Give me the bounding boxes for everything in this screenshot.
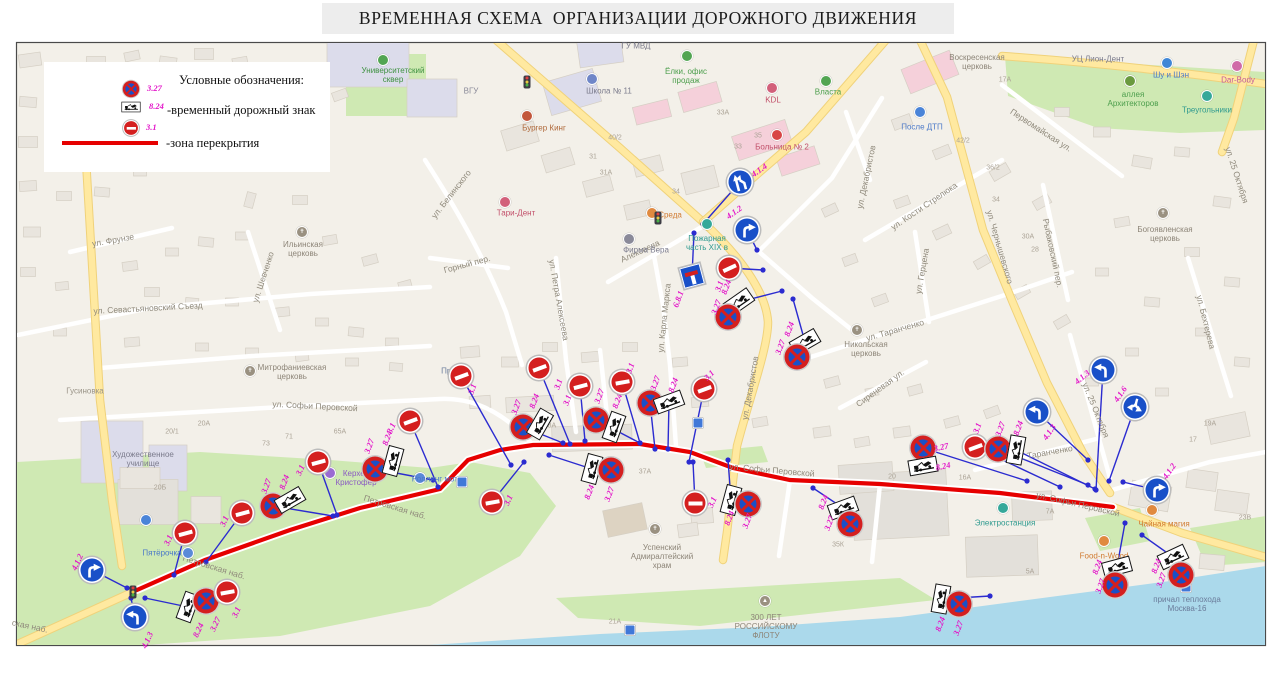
- building: [21, 268, 36, 277]
- building: [198, 237, 214, 248]
- building: [1094, 127, 1111, 137]
- building: [460, 346, 480, 359]
- sign-anchor-dot: [521, 459, 526, 464]
- building: [1186, 469, 1218, 492]
- building: [1224, 277, 1240, 287]
- legend-sign-3.1: [124, 121, 138, 135]
- building: [1144, 297, 1160, 307]
- building: [581, 351, 599, 362]
- building: [24, 227, 41, 237]
- sign-anchor-dot: [1122, 520, 1127, 525]
- traffic-sign-3.27: [125, 83, 136, 94]
- building: [1199, 553, 1225, 570]
- page-title: ВРЕМЕННАЯ СХЕМА ОРГАНИЗАЦИИ ДОРОЖНОГО ДВ…: [322, 3, 954, 34]
- building: [293, 196, 308, 205]
- legend-closure-line-sample: [62, 141, 158, 145]
- legend-heading: Условные обозначения:: [179, 73, 304, 88]
- building: [1174, 147, 1190, 157]
- building: [19, 96, 37, 107]
- building: [19, 137, 38, 148]
- building: [1185, 248, 1200, 257]
- sign-anchor-dot: [435, 484, 440, 489]
- legend-sign-label: 8.24: [149, 101, 164, 111]
- sign-anchor-dot: [1085, 457, 1090, 462]
- sign-anchor-dot: [760, 267, 765, 272]
- sign-anchor-dot: [560, 440, 565, 445]
- building: [120, 468, 160, 489]
- building: [348, 327, 364, 338]
- sign-anchor-dot: [754, 247, 759, 252]
- sign-anchor-dot: [665, 446, 670, 451]
- building: [506, 395, 555, 412]
- building: [1156, 388, 1169, 396]
- sign-anchor-dot: [142, 595, 147, 600]
- building: [1196, 328, 1209, 336]
- building: [196, 343, 209, 351]
- sign-anchor-dot: [1024, 478, 1029, 483]
- legend-sign-8.24: [121, 102, 140, 113]
- sign-anchor-dot: [690, 459, 695, 464]
- sign-anchor-dot: [124, 585, 129, 590]
- sign-anchor-dot: [546, 452, 551, 457]
- building: [502, 357, 519, 367]
- sign-anchor-dot: [1057, 484, 1062, 489]
- building: [677, 522, 699, 538]
- sign-leader-line: [668, 402, 669, 449]
- legend-temp-sign-text: -временный дорожный знак: [167, 103, 316, 118]
- building: [838, 462, 894, 495]
- building: [55, 281, 69, 290]
- scheme-page: ВРЕМЕННАЯ СХЕМА ОРГАНИЗАЦИИ ДОРОЖНОГО ДВ…: [0, 0, 1280, 678]
- building: [576, 32, 624, 68]
- building: [543, 343, 558, 352]
- sign-anchor-dot: [203, 559, 208, 564]
- building: [407, 79, 457, 117]
- building: [191, 497, 221, 524]
- sign-anchor-dot: [987, 593, 992, 598]
- building: [1215, 489, 1250, 514]
- building: [145, 288, 160, 297]
- building: [327, 29, 409, 87]
- sign-anchor-dot: [691, 230, 696, 235]
- building: [1086, 378, 1099, 386]
- building: [346, 358, 359, 366]
- sign-anchor-dot: [334, 512, 339, 517]
- building: [322, 234, 337, 245]
- sign-anchor-dot: [567, 441, 572, 446]
- building: [690, 508, 713, 525]
- traffic-sign-3.1: [124, 121, 138, 135]
- building: [735, 500, 755, 513]
- building: [623, 343, 638, 352]
- sign-anchor-dot: [725, 457, 730, 462]
- legend-sign-label: 3.1: [146, 122, 157, 132]
- building: [893, 426, 911, 438]
- building: [57, 192, 72, 201]
- building: [672, 357, 688, 367]
- sign-anchor-dot: [700, 221, 705, 226]
- sign-anchor-dot: [779, 288, 784, 293]
- sign-anchor-dot: [508, 462, 513, 467]
- traffic-sign-8.24: [121, 102, 140, 113]
- sign-anchor-dot: [128, 595, 133, 600]
- sign-anchor-dot: [810, 485, 815, 490]
- sign-anchor-dot: [1139, 532, 1144, 537]
- building: [1213, 196, 1231, 208]
- building: [1234, 357, 1250, 367]
- building: [122, 261, 138, 272]
- building: [18, 52, 42, 68]
- building: [94, 187, 110, 197]
- building: [813, 426, 831, 438]
- sign-anchor-dot: [1093, 487, 1098, 492]
- building: [1055, 108, 1070, 117]
- sign-anchor-dot: [171, 572, 176, 577]
- building: [166, 248, 179, 256]
- building: [19, 180, 37, 191]
- building: [1126, 348, 1139, 356]
- building: [389, 362, 403, 371]
- sign-anchor-dot: [582, 438, 587, 443]
- sign-anchor-dot: [1120, 479, 1125, 484]
- sign-anchor-dot: [652, 446, 657, 451]
- building: [965, 535, 1038, 577]
- legend-closure-text: -зона перекрытия: [166, 136, 259, 151]
- sign-anchor-dot: [1106, 478, 1111, 483]
- legend-sign-3.27: [125, 83, 136, 94]
- building: [1096, 268, 1109, 276]
- building: [195, 49, 214, 60]
- building: [124, 337, 140, 347]
- building: [386, 338, 399, 346]
- legend-sign-label: 3.27: [147, 83, 162, 93]
- sign-anchor-dot: [637, 440, 642, 445]
- sign-anchor-dot: [790, 296, 795, 301]
- legend-box: Условные обозначения: -временный дорожны…: [44, 62, 330, 172]
- building: [316, 318, 329, 326]
